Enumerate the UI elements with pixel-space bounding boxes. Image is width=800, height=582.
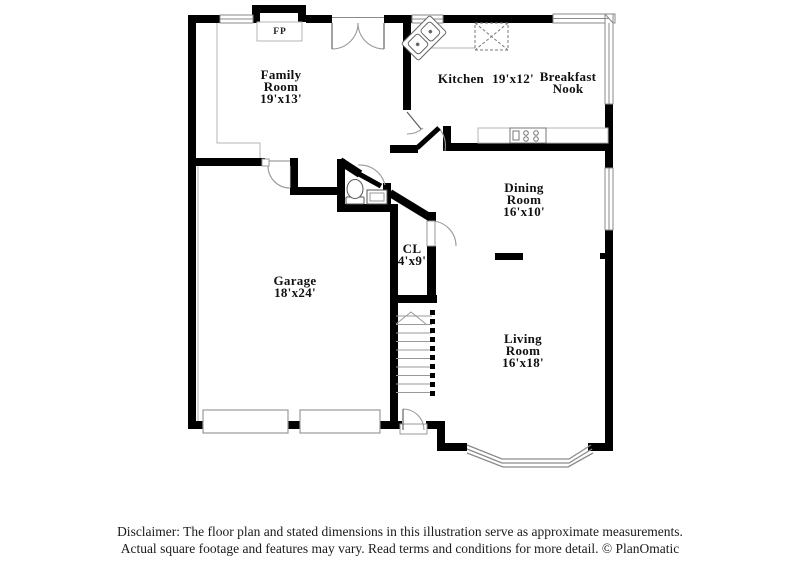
room-label-garage: Garage 18'x24' [274,275,317,299]
stove [510,128,546,143]
toilet [346,180,364,205]
refrigerator-box [475,23,508,50]
room-label-kitchen: Kitchen [438,73,484,85]
room-label-kitchen-dims: 19'x12' [492,73,534,85]
room-label-closet: CL 4'x9' [398,243,426,267]
bay-window [467,445,593,467]
fireplace-label: FP [273,27,287,37]
room-label-breakfast-nook: Breakfast Nook [540,71,597,95]
floor-plan-page: Family Room 19'x13' Kitchen 19'x12' Brea… [0,0,800,582]
disclaimer-text: Disclaimer: The floor plan and stated di… [0,523,800,557]
room-label-family: Family Room 19'x13' [260,69,302,105]
floor-plan-drawing [0,0,800,582]
interior-lines [198,23,260,421]
room-label-living: Living Room 16'x18' [502,333,544,369]
room-label-dining: Dining Room 16'x10' [503,182,545,218]
staircase [396,310,433,397]
bathroom-sink [367,190,387,204]
